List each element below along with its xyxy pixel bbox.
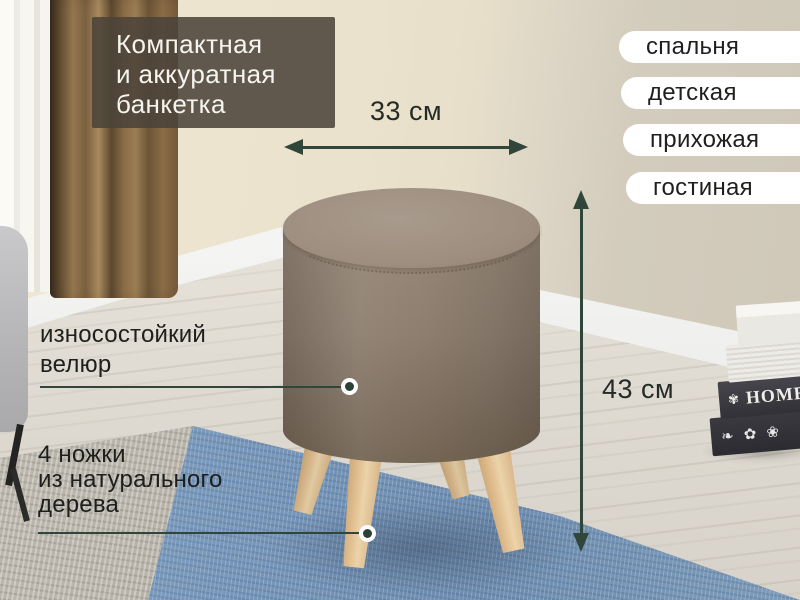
pouf-seam (288, 196, 535, 274)
callout-dot-upholstery (341, 378, 358, 395)
callout-dot-legs (359, 525, 376, 542)
book-spine-title: HOME (745, 382, 800, 408)
room-tag-bedroom: спальня (619, 31, 800, 63)
height-dimension-line (580, 204, 583, 536)
arrowhead-down-icon (573, 533, 589, 552)
width-dimension-label: 33 см (331, 96, 481, 127)
arrowhead-left-icon (284, 139, 303, 155)
book-floral-pattern: ❧ ✿ ❀ (720, 422, 782, 445)
height-dimension-label: 43 см (602, 374, 674, 405)
flower-ornament-icon: ✾ (728, 392, 740, 406)
feature-legs-line-3: дерева (38, 492, 223, 517)
feature-upholstery: износостойкий велюр (40, 320, 206, 380)
callout-line-upholstery (40, 386, 342, 388)
armchair (0, 226, 28, 432)
room-tag-label: спальня (646, 33, 739, 61)
room-tag-hallway: прихожая (623, 124, 800, 156)
room-tag-kids: детская (621, 77, 800, 109)
title-line-1: Компактная (116, 29, 335, 59)
product-banner: ❧ ✿ ❀ ✾ HOME Компактная и аккуратная бан… (0, 0, 800, 600)
title-line-2: и аккуратная (116, 59, 335, 89)
title-overlay: Компактная и аккуратная банкетка (92, 17, 335, 128)
book-white (736, 300, 800, 346)
room-tag-label: детская (648, 79, 737, 107)
feature-upholstery-line-1: износостойкий (40, 320, 206, 350)
room-tag-label: прихожая (650, 126, 759, 154)
room-tag-label: гостиная (653, 174, 753, 202)
feature-legs: 4 ножки из натурального дерева (38, 442, 223, 517)
arrowhead-up-icon (573, 190, 589, 209)
room-tag-livingroom: гостиная (626, 172, 800, 204)
book-cream (726, 338, 800, 382)
feature-legs-line-2: из натурального (38, 467, 223, 492)
feature-upholstery-line-2: велюр (40, 350, 206, 380)
title-line-3: банкетка (116, 89, 335, 119)
feature-legs-line-1: 4 ножки (38, 442, 223, 467)
arrowhead-right-icon (509, 139, 528, 155)
callout-line-legs (38, 532, 360, 534)
width-dimension-line (300, 146, 512, 149)
